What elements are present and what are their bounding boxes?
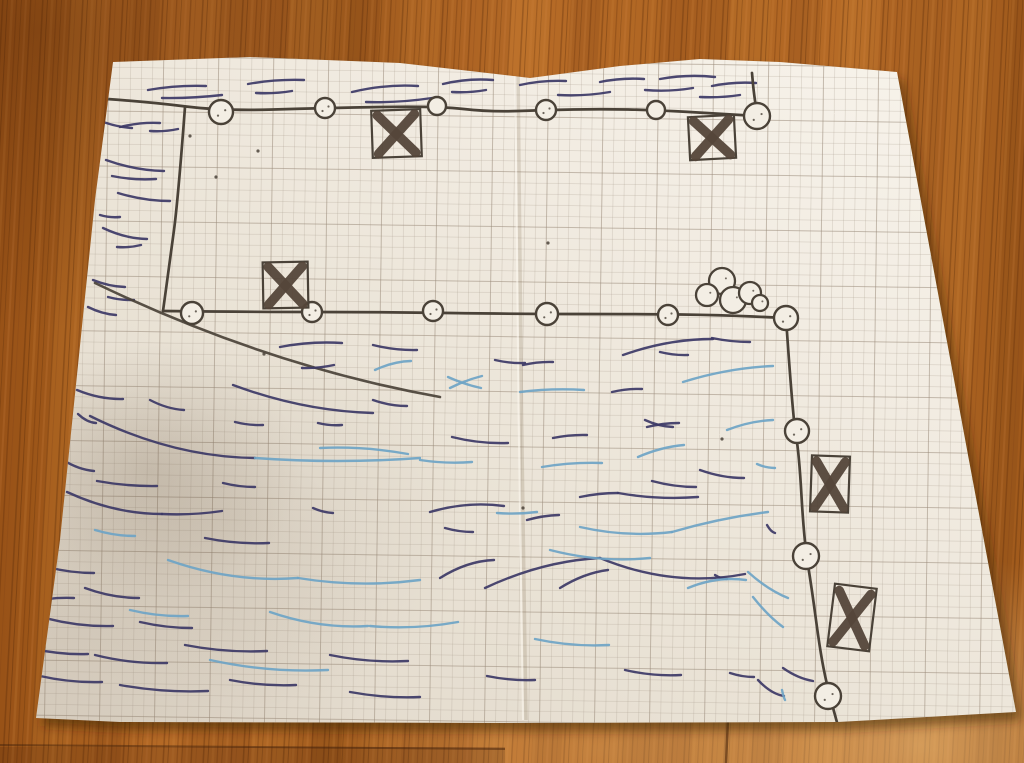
mooring-post	[536, 100, 556, 120]
mooring-post	[428, 97, 446, 115]
rock	[696, 284, 718, 306]
pen-dot	[546, 241, 549, 244]
mooring-post	[774, 306, 798, 330]
pen-dot	[214, 175, 217, 178]
mooring-post	[536, 303, 558, 325]
mooring-post	[815, 683, 841, 709]
mooring-post	[647, 101, 665, 119]
scene-canvas	[0, 0, 1024, 763]
mooring-post	[315, 98, 335, 118]
rock	[752, 295, 768, 311]
pen-dot	[262, 352, 265, 355]
mooring-post	[785, 419, 809, 443]
pen-dot	[188, 134, 191, 137]
mooring-post	[181, 302, 203, 324]
mooring-post	[793, 543, 819, 569]
pen-dot	[256, 149, 259, 152]
mooring-post	[658, 305, 678, 325]
mooring-post	[209, 100, 233, 124]
mooring-post	[744, 103, 770, 129]
pen-dot	[521, 506, 524, 509]
mooring-post	[423, 301, 443, 321]
photo-hand-drawn-dock-map	[0, 0, 1024, 763]
pen-dot	[720, 437, 723, 440]
